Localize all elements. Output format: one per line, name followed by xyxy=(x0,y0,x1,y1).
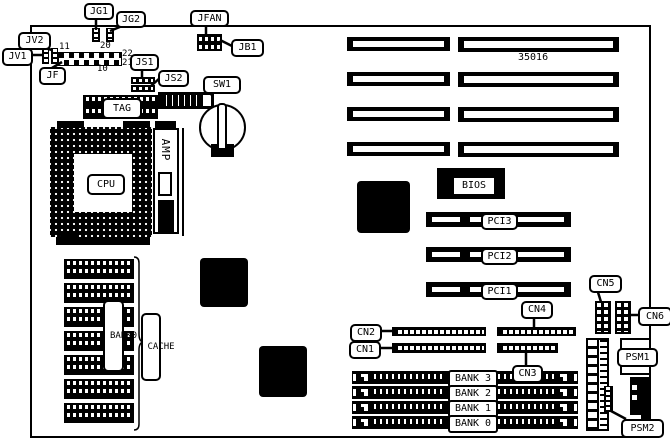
battery-rod xyxy=(217,103,227,150)
part-number: 35016 xyxy=(518,53,548,62)
cn6-label: CN6 xyxy=(638,307,670,326)
jfan-label: JFAN xyxy=(190,10,229,27)
pci3-label: PCI3 xyxy=(481,213,518,230)
js1-label: JS1 xyxy=(130,54,159,71)
pci2-label: PCI2 xyxy=(481,248,518,265)
jv1-label: JV1 xyxy=(2,48,33,66)
cpu-label: CPU xyxy=(87,174,125,195)
cn5-label: CN5 xyxy=(589,275,622,293)
jb1-label: JB1 xyxy=(231,39,264,57)
tag-label: TAG xyxy=(102,98,142,119)
cn4-label: CN4 xyxy=(521,301,553,319)
js2-label: JS2 xyxy=(158,70,189,87)
jg2-label: JG2 xyxy=(116,11,146,28)
jf-pin-10: 10 xyxy=(97,65,108,74)
bank0-label: BANK 0 xyxy=(448,415,498,433)
sw1-label: SW1 xyxy=(203,76,241,94)
bios-label: BIOS xyxy=(452,176,496,196)
jf-pin-20: 20 xyxy=(100,42,111,51)
cn1-label: CN1 xyxy=(349,341,381,359)
pci1-label: PCI1 xyxy=(481,283,518,300)
jf-pin-11: 11 xyxy=(59,43,70,52)
psm2-label: PSM2 xyxy=(621,419,664,438)
jg1-label: JG1 xyxy=(84,3,114,20)
cache-label: CACHE xyxy=(141,313,161,381)
cn3-label: CN3 xyxy=(512,365,543,383)
psm1-label: PSM1 xyxy=(617,348,658,367)
bank0-chips-label: BANK0 xyxy=(103,300,124,372)
cn2-label: CN2 xyxy=(350,324,382,342)
jf-label: JF xyxy=(39,67,66,85)
motherboard-diagram: JG1 JG2 JV2 JV1 11 20 22 21 10 JF JS1 JS… xyxy=(0,0,670,441)
